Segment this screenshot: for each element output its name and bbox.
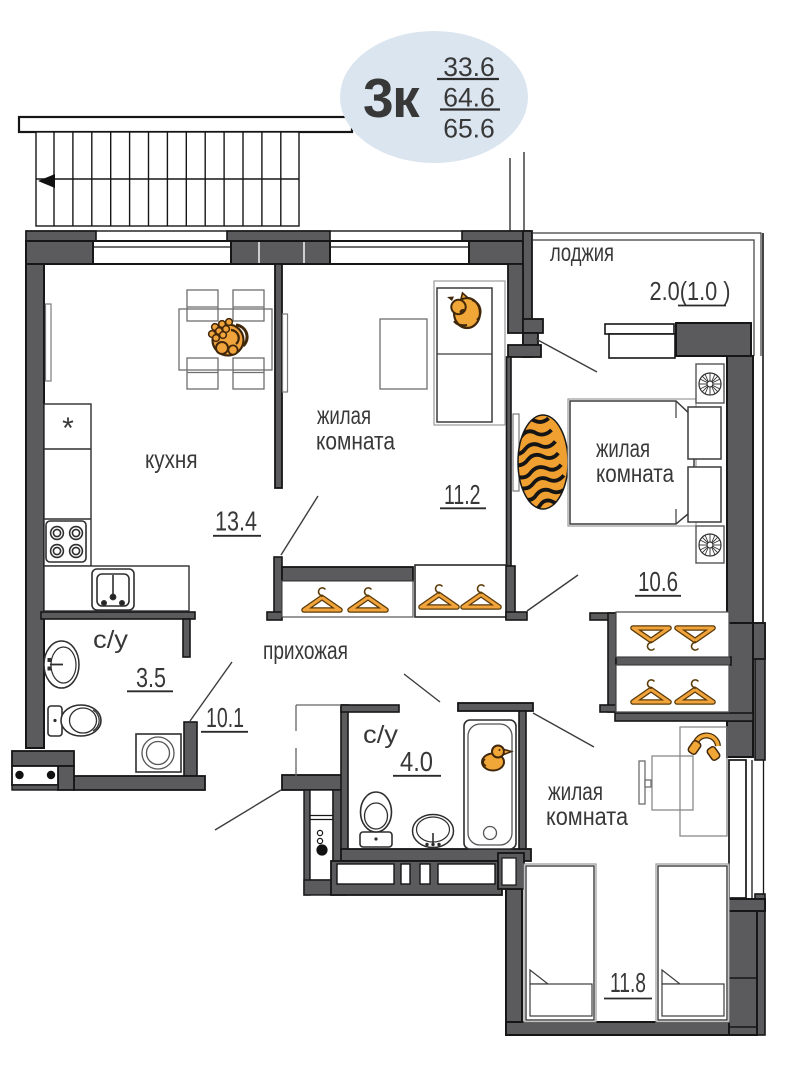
svg-text:лоджия: лоджия: [550, 239, 614, 267]
svg-text:жилая: жилая: [548, 778, 603, 806]
svg-text:3к: 3к: [363, 67, 420, 129]
svg-text:10.1: 10.1: [206, 702, 244, 733]
svg-text:с/у: с/у: [363, 721, 399, 749]
svg-text:с/у: с/у: [93, 626, 129, 654]
svg-text:11.2: 11.2: [444, 479, 481, 510]
svg-text:65.6: 65.6: [443, 114, 495, 144]
svg-text:комната: комната: [546, 803, 628, 831]
svg-text:комната: комната: [596, 460, 674, 488]
svg-text:33.6: 33.6: [443, 52, 495, 82]
svg-text:13.4: 13.4: [215, 506, 257, 537]
svg-text:11.8: 11.8: [610, 967, 646, 998]
svg-text:жилая: жилая: [317, 402, 371, 430]
svg-text:жилая: жилая: [596, 435, 650, 463]
svg-text:кухня: кухня: [145, 446, 198, 474]
svg-text:*: *: [62, 412, 74, 445]
svg-text:2.0(1.0 ): 2.0(1.0 ): [650, 276, 731, 306]
svg-text:комната: комната: [316, 428, 395, 456]
svg-text:3.5: 3.5: [136, 662, 166, 693]
svg-text:10.6: 10.6: [638, 566, 678, 597]
svg-text:64.6: 64.6: [443, 83, 495, 113]
svg-text:прихожая: прихожая: [263, 637, 348, 665]
svg-text:4.0: 4.0: [400, 746, 433, 777]
